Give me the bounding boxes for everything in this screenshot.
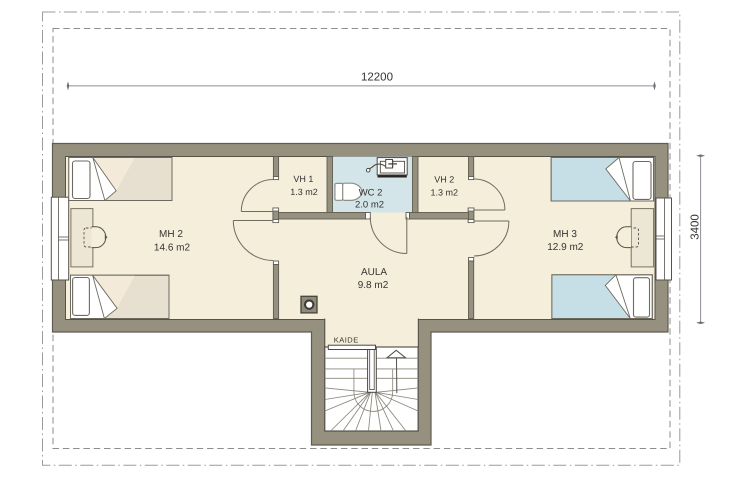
svg-text:12.9 m2: 12.9 m2 (547, 242, 584, 253)
svg-text:3400: 3400 (690, 214, 702, 240)
svg-text:1.3 m2: 1.3 m2 (430, 187, 458, 197)
svg-text:12200: 12200 (361, 71, 393, 83)
svg-text:14.6 m2: 14.6 m2 (154, 242, 191, 253)
svg-text:1.3 m2: 1.3 m2 (290, 187, 318, 197)
svg-text:KAIDE: KAIDE (334, 336, 359, 345)
svg-text:9.8 m2: 9.8 m2 (358, 280, 389, 291)
svg-text:AULA: AULA (361, 267, 387, 278)
svg-text:VH 2: VH 2 (434, 174, 454, 184)
svg-text:WC 2: WC 2 (359, 188, 383, 199)
svg-text:VH 1: VH 1 (293, 174, 313, 184)
svg-text:2.0 m2: 2.0 m2 (355, 200, 384, 211)
svg-text:MH 2: MH 2 (159, 229, 183, 240)
svg-text:MH 3: MH 3 (553, 229, 577, 240)
